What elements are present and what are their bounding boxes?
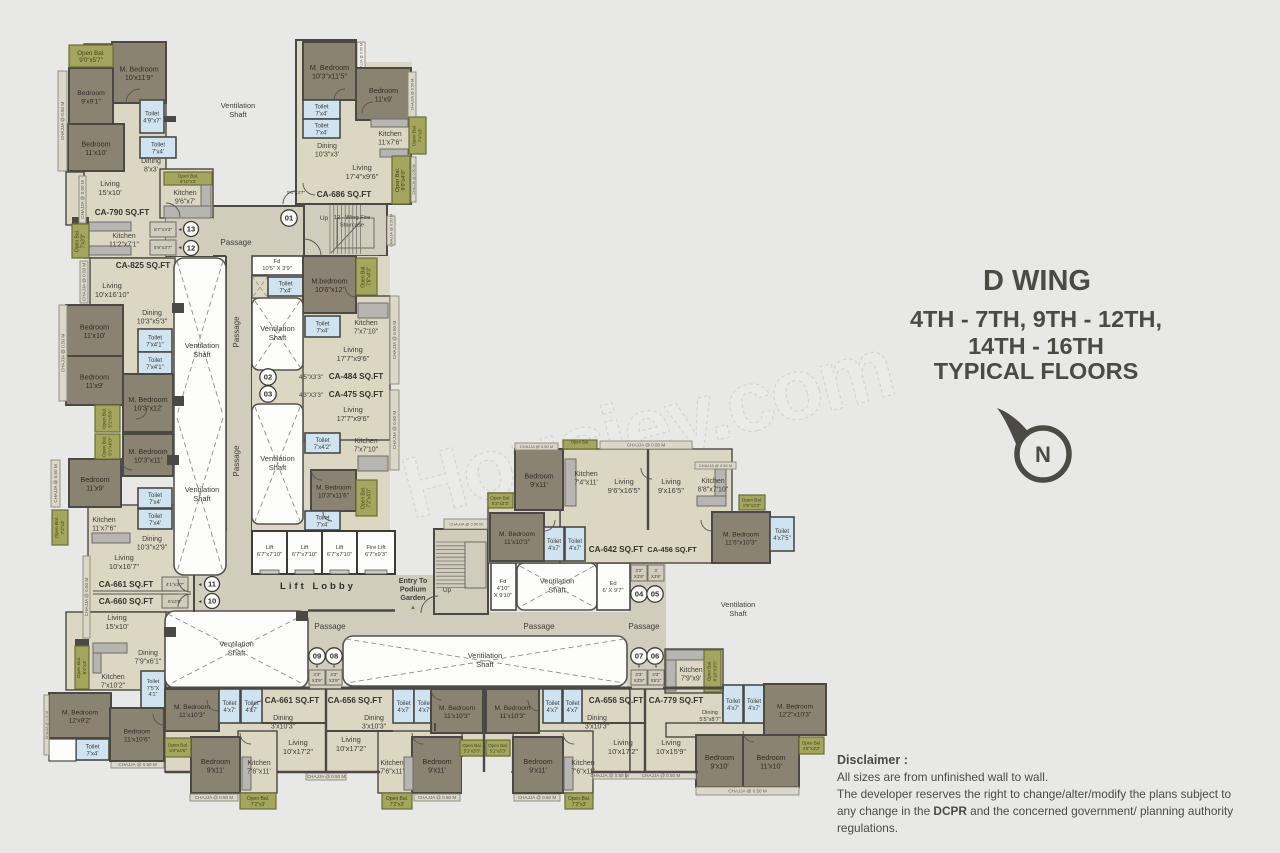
svg-text:▲: ▲ [410, 605, 416, 611]
svg-text:5'3"x3'3": 5'3"x3'3" [492, 501, 510, 506]
svg-text:4'3"X3'3": 4'3"X3'3" [299, 393, 323, 399]
svg-text:11'x10'3": 11'x10'3" [504, 539, 531, 546]
svg-text:10'x16'10": 10'x16'10" [95, 290, 130, 299]
svg-text:Open Bal.: Open Bal. [488, 743, 508, 748]
svg-text:M. Bedroom: M. Bedroom [723, 532, 759, 539]
svg-text:4'x7': 4'x7' [748, 706, 760, 712]
svg-text:Living: Living [343, 405, 363, 414]
svg-text:Lift Lobby: Lift Lobby [280, 581, 356, 592]
svg-text:Toilet: Toilet [726, 699, 740, 705]
svg-text:7'x4': 7'x4' [317, 329, 329, 335]
svg-text:14TH - 16TH: 14TH - 16TH [968, 333, 1104, 359]
svg-text:9'0"x5'7": 9'0"x5'7" [79, 57, 103, 64]
svg-text:Living: Living [288, 738, 308, 747]
svg-text:Toilet: Toilet [545, 701, 559, 707]
svg-text:Open Bal.: Open Bal. [76, 657, 82, 678]
svg-text:any change in the DCPR and the: any change in the DCPR and the concerned… [837, 804, 1233, 818]
svg-text:Living: Living [661, 738, 681, 747]
svg-text:9'4"x3': 9'4"x3' [82, 660, 88, 674]
svg-text:9'x16'5": 9'x16'5" [658, 486, 684, 495]
svg-text:Kitchen: Kitchen [701, 478, 724, 485]
svg-text:3'3": 3'3" [652, 672, 660, 677]
svg-text:7'x4'1": 7'x4'1" [146, 343, 163, 349]
svg-text:9'10"x3': 9'10"x3' [180, 179, 196, 184]
svg-text:12: 12 [187, 244, 195, 253]
svg-text:Garden: Garden [400, 593, 425, 602]
svg-text:Ed: Ed [609, 581, 616, 587]
svg-text:5'0"x4'6": 5'0"x4'6" [169, 748, 187, 753]
svg-text:11'x10'3": 11'x10'3" [444, 713, 471, 720]
svg-text:Toilet: Toilet [417, 701, 431, 707]
svg-text:Toilet: Toilet [147, 679, 160, 685]
svg-text:Toilet: Toilet [222, 701, 236, 707]
svg-text:Lift: Lift [336, 545, 344, 551]
svg-text:6'7"x7'10": 6'7"x7'10" [327, 552, 352, 558]
svg-text:5'1"x3'3": 5'1"x3'3" [490, 748, 507, 753]
svg-text:CHAJJA @ 0.50 M: CHAJJA @ 0.50 M [392, 411, 397, 450]
svg-text:5'5"x8'7": 5'5"x8'7" [699, 717, 720, 723]
svg-text:7'x7'10": 7'x7'10" [354, 447, 379, 454]
svg-text:7'x4'2": 7'x4'2" [314, 445, 331, 451]
svg-text:CHAJJA @ 0.50 M: CHAJJA @ 0.50 M [518, 795, 557, 800]
svg-text:4'x7': 4'x7' [224, 708, 236, 714]
svg-text:10'6"x12': 10'6"x12' [315, 285, 345, 294]
svg-text:Passage: Passage [523, 622, 555, 631]
svg-text:Toilet: Toilet [315, 516, 329, 522]
svg-text:5'1"x5'6": 5'1"x5'6" [108, 409, 114, 428]
svg-text:3'x10'3": 3'x10'3" [362, 724, 387, 731]
svg-text:3'3": 3'3" [635, 672, 643, 677]
svg-text:11'x9': 11'x9' [375, 95, 393, 104]
svg-text:4TH - 7TH, 9TH - 12TH,: 4TH - 7TH, 9TH - 12TH, [910, 306, 1162, 332]
svg-text:10'x16'7": 10'x16'7" [109, 562, 139, 571]
svg-text:M. Bedroom: M. Bedroom [128, 447, 167, 456]
svg-text:4'10": 4'10" [497, 586, 510, 592]
svg-text:Bedroom: Bedroom [80, 373, 109, 382]
svg-text:Bedroom: Bedroom [369, 86, 398, 95]
svg-text:Ventilation: Ventilation [219, 640, 254, 649]
svg-text:◄: ◄ [178, 227, 183, 233]
svg-text:4'1"x3'7": 4'1"x3'7" [166, 582, 185, 588]
svg-text:Dining: Dining [587, 715, 607, 722]
svg-text:7'4"x11': 7'4"x11' [574, 480, 598, 487]
svg-text:Toilet: Toilet [148, 358, 162, 364]
svg-text:◄: ◄ [178, 245, 183, 251]
svg-text:17'4"x9'6": 17'4"x9'6" [346, 172, 379, 181]
svg-text:7'x4': 7'x4' [152, 150, 164, 156]
svg-text:X 9'10": X 9'10" [494, 593, 512, 599]
svg-text:Kitchen: Kitchen [354, 320, 377, 327]
svg-text:08: 08 [330, 652, 338, 661]
svg-text:Ventilation: Ventilation [221, 101, 256, 110]
svg-text:8'8"x7'10": 8'8"x7'10" [698, 487, 729, 494]
svg-text:CA-656 SQ.FT: CA-656 SQ.FT [589, 696, 644, 705]
svg-text:Bedroom: Bedroom [80, 475, 109, 484]
svg-text:7'2"x3': 7'2"x3' [60, 520, 66, 534]
svg-text:Up: Up [320, 215, 329, 222]
svg-text:Dining: Dining [141, 158, 161, 165]
svg-text:CHAJJA @ 0.50 M: CHAJJA @ 0.50 M [520, 444, 553, 449]
svg-text:Toilet: Toilet [148, 336, 162, 342]
svg-text:Kitchen: Kitchen [173, 190, 196, 197]
svg-text:Ventilation: Ventilation [260, 454, 295, 463]
svg-text:Open Bal.: Open Bal. [571, 440, 590, 445]
svg-text:CA-661 SQ.FT: CA-661 SQ.FT [99, 580, 154, 589]
svg-text:Living: Living [352, 163, 372, 172]
svg-text:10: 10 [208, 597, 216, 606]
svg-text:Toilet: Toilet [278, 282, 292, 288]
svg-text:M. Bedroom: M. Bedroom [62, 710, 98, 717]
svg-text:Toilet: Toilet [151, 143, 165, 149]
svg-text:13: 13 [187, 225, 195, 234]
svg-text:Living: Living [107, 613, 127, 622]
svg-text:Dining: Dining [142, 536, 162, 543]
svg-text:CHAJJA @ 0.50 M: CHAJJA @ 0.50 M [53, 464, 58, 503]
svg-text:Open Bal.: Open Bal. [102, 436, 108, 457]
svg-text:5'7"x3'3": 5'7"x3'3" [154, 227, 173, 233]
svg-text:11'x7'6": 11'x7'6" [378, 140, 402, 147]
svg-text:Living: Living [341, 735, 361, 744]
svg-text:Lift: Lift [266, 545, 274, 551]
svg-text:7'x4': 7'x4' [87, 752, 99, 758]
svg-text:5'1"x3'3": 5'1"x3'3" [464, 748, 481, 753]
svg-text:7'x4': 7'x4' [149, 500, 161, 506]
svg-text:Open Bal.: Open Bal. [490, 496, 510, 501]
svg-text:9'9"x4'0": 9'9"x4'0" [401, 169, 407, 190]
svg-text:11'x10': 11'x10' [84, 331, 106, 340]
svg-text:15'x10': 15'x10' [105, 622, 129, 631]
svg-text:M. Bedroom: M. Bedroom [128, 395, 167, 404]
svg-text:M. Bedroom: M. Bedroom [174, 704, 210, 711]
svg-text:Shaft: Shaft [729, 609, 747, 618]
svg-text:7'9"x9': 7'9"x9' [681, 676, 701, 683]
svg-text:11'x9': 11'x9' [86, 484, 104, 493]
svg-text:11'x10': 11'x10' [760, 762, 782, 771]
svg-text:Toilet: Toilet [568, 539, 582, 545]
svg-text:Living: Living [100, 179, 120, 188]
svg-text:7'x7'10": 7'x7'10" [354, 329, 379, 336]
svg-text:9'x9'1": 9'x9'1" [81, 98, 101, 105]
svg-text:12 - Wing Fire: 12 - Wing Fire [334, 215, 370, 221]
svg-text:Bedroom: Bedroom [77, 90, 105, 97]
svg-text:CHAJJA @ 0.50 M: CHAJJA @ 0.50 M [61, 334, 66, 373]
svg-text:Dining: Dining [364, 715, 384, 722]
svg-text:M. Bedroom: M. Bedroom [119, 65, 158, 74]
svg-text:3'3": 3'3" [313, 672, 321, 677]
svg-text:CHAJJA @ 0.50 M: CHAJJA @ 0.50 M [45, 711, 49, 739]
svg-text:10'x17'2": 10'x17'2" [336, 744, 366, 753]
svg-text:CHAJJA @ 0.50 M: CHAJJA @ 0.50 M [307, 774, 346, 779]
svg-text:D WING: D WING [983, 265, 1091, 297]
svg-text:Shaft: Shaft [269, 463, 287, 472]
svg-text:11'x10': 11'x10' [85, 148, 107, 157]
svg-text:CHAJJA @ 0.50 M: CHAJJA @ 0.50 M [411, 79, 415, 111]
svg-text:Living: Living [614, 477, 634, 486]
svg-text:Kitchen: Kitchen [101, 674, 124, 681]
svg-text:Shaft: Shaft [476, 660, 494, 669]
svg-text:Ventilation: Ventilation [185, 341, 220, 350]
svg-text:CHAJJA @ 0.50 M: CHAJJA @ 0.50 M [699, 463, 732, 468]
svg-text:6'5"x3'3": 6'5"x3'3" [743, 503, 761, 508]
svg-text:X3'9": X3'9" [651, 574, 662, 579]
svg-text:X5'2": X5'2" [651, 678, 662, 683]
svg-text:4'x7': 4'x7' [727, 706, 739, 712]
svg-text:7'x4'1": 7'x4'1" [146, 365, 163, 371]
svg-text:Open Bal.: Open Bal. [54, 517, 60, 538]
svg-text:11'2"x7'1": 11'2"x7'1" [109, 242, 140, 249]
svg-text:Bedroom: Bedroom [201, 757, 230, 766]
svg-text:7'8"x4'0": 7'8"x4'0" [367, 267, 373, 286]
svg-text:Fire Lift: Fire Lift [366, 545, 386, 551]
svg-text:Bedroom: Bedroom [81, 140, 110, 149]
svg-text:8'x3': 8'x3' [144, 167, 158, 174]
svg-text:Ventilation: Ventilation [185, 485, 220, 494]
svg-text:CHAJJA @ 0.50 M: CHAJJA @ 0.50 M [84, 578, 89, 617]
svg-text:CA-642 SQ.FT: CA-642 SQ.FT [589, 545, 644, 554]
svg-text:Ventilation: Ventilation [721, 600, 756, 609]
svg-text:Toilet: Toilet [315, 438, 329, 444]
svg-text:CHAJJA @ 0.50 M: CHAJJA @ 0.50 M [82, 263, 87, 302]
svg-text:03: 03 [264, 390, 272, 399]
svg-text:Kitchen: Kitchen [112, 233, 135, 240]
svg-text:9'x10': 9'x10' [710, 762, 729, 771]
svg-text:Toilet: Toilet [747, 699, 761, 705]
svg-text:Fd: Fd [274, 259, 281, 265]
svg-text:9'x11': 9'x11' [530, 480, 548, 489]
svg-text:7'6"x11': 7'6"x11' [380, 769, 404, 776]
svg-text:CA-484 SQ.FT: CA-484 SQ.FT [329, 372, 384, 381]
svg-text:6'7"x7'10": 6'7"x7'10" [292, 552, 317, 558]
svg-text:3'x10'3": 3'x10'3" [271, 724, 296, 731]
svg-text:05: 05 [651, 590, 660, 599]
svg-text:Dining: Dining [142, 310, 162, 317]
svg-text:CHAJJA @ 0.50 M: CHAJJA @ 0.50 M [449, 522, 482, 527]
svg-text:CA-656 SQ.FT: CA-656 SQ.FT [328, 696, 383, 705]
svg-text:10'3"x12': 10'3"x12' [134, 404, 164, 413]
svg-text:7'2"x4'0": 7'2"x4'0" [367, 488, 373, 507]
svg-text:M.bedroom: M.bedroom [311, 277, 347, 286]
svg-text:Shaft: Shaft [193, 350, 211, 359]
svg-text:TYPICAL FLOORS: TYPICAL FLOORS [934, 358, 1139, 384]
svg-text:M. Bedroom: M. Bedroom [316, 485, 351, 492]
svg-text:Ventilation: Ventilation [260, 324, 295, 333]
svg-text:Dining: Dining [273, 715, 293, 722]
svg-text:Disclaimer :: Disclaimer : [837, 753, 908, 767]
svg-text:12'x9'2": 12'x9'2" [69, 718, 92, 725]
svg-text:Kitchen: Kitchen [679, 667, 702, 674]
svg-text:Kitchen: Kitchen [380, 760, 403, 767]
svg-text:8'10"X3'5": 8'10"X3'5" [713, 660, 718, 681]
svg-text:7'x4': 7'x4' [280, 289, 292, 295]
svg-text:Shaft: Shaft [193, 494, 211, 503]
svg-text:07: 07 [635, 652, 643, 661]
svg-text:Dining: Dining [702, 710, 718, 716]
svg-text:Ventilation: Ventilation [540, 577, 575, 586]
svg-text:Open Bal.: Open Bal. [802, 741, 822, 746]
svg-text:04: 04 [635, 590, 644, 599]
svg-text:9'x11': 9'x11' [529, 766, 547, 775]
svg-text:CHAJJA @ 0.50 M: CHAJJA @ 0.50 M [642, 773, 681, 778]
svg-text:17'7"x9'6": 17'7"x9'6" [337, 414, 370, 423]
svg-text:X3'9": X3'9" [634, 678, 645, 683]
svg-text:6' X 9'7": 6' X 9'7" [602, 588, 623, 594]
svg-text:CA-660 SQ.FT: CA-660 SQ.FT [99, 597, 154, 606]
svg-text:Bedroom: Bedroom [422, 757, 451, 766]
svg-text:Kitchen: Kitchen [378, 131, 401, 138]
svg-text:5'1"x6'0": 5'1"x6'0" [108, 437, 114, 456]
svg-text:Shaft: Shaft [548, 586, 566, 595]
svg-text:Bedroom: Bedroom [124, 729, 151, 736]
svg-text:CA-456 SQ.FT: CA-456 SQ.FT [647, 545, 697, 554]
svg-text:CHAJJA @ 0.50 M: CHAJJA @ 0.50 M [627, 443, 666, 448]
svg-text:4'8"X3'3": 4'8"X3'3" [803, 746, 821, 751]
svg-text:CHAJJA @ 0.50 M: CHAJJA @ 0.50 M [728, 789, 767, 794]
svg-text:10'3"x3': 10'3"x3' [315, 152, 339, 159]
svg-text:Lift: Lift [301, 545, 309, 551]
svg-text:10'x17'2": 10'x17'2" [608, 747, 638, 756]
svg-text:Passage: Passage [628, 622, 660, 631]
svg-text:3'3": 3'3" [330, 672, 338, 677]
svg-text:Passage: Passage [232, 316, 241, 348]
svg-text:CHAJJA @ 0.50 M: CHAJJA @ 0.50 M [80, 180, 85, 219]
svg-text:01: 01 [285, 214, 294, 223]
svg-text:The developer reserves the rig: The developer reserves the right to chan… [837, 787, 1232, 801]
svg-text:CHAJJA @ 0.50 M: CHAJJA @ 0.50 M [418, 795, 457, 800]
svg-text:Kitchen: Kitchen [354, 438, 377, 445]
svg-text:Bedroom: Bedroom [523, 757, 552, 766]
svg-text:7'2"x3': 7'2"x3' [251, 802, 266, 808]
svg-text:CHAJJA @ 0.50 M: CHAJJA @ 0.50 M [412, 164, 416, 194]
svg-text:12'2"x10'3": 12'2"x10'3" [779, 712, 812, 719]
svg-text:Bedroom: Bedroom [756, 753, 785, 762]
svg-text:CHAJJA @ 0.50 M: CHAJJA @ 0.50 M [389, 214, 394, 247]
svg-text:Toilet: Toilet [145, 112, 159, 118]
svg-text:10'x15'9": 10'x15'9" [656, 747, 686, 756]
svg-text:6'7"x9'3": 6'7"x9'3" [365, 552, 387, 558]
svg-text:X3'9": X3'9" [634, 574, 645, 579]
svg-text:N: N [1035, 442, 1051, 467]
svg-text:Open Bal.: Open Bal. [77, 50, 105, 57]
svg-text:Living: Living [661, 477, 681, 486]
svg-text:9'6"x16'5": 9'6"x16'5" [608, 486, 641, 495]
svg-text:Toilet: Toilet [547, 539, 561, 545]
svg-text:11'x9': 11'x9' [86, 381, 104, 390]
svg-text:4'x7': 4'x7' [398, 708, 410, 714]
svg-text:10'x17'2": 10'x17'2" [283, 747, 313, 756]
svg-text:Toilet: Toilet [148, 493, 162, 499]
svg-text:Toilet: Toilet [85, 745, 99, 751]
svg-text:10'3"x11'6": 10'3"x11'6" [318, 492, 349, 499]
svg-text:M. Bedroom: M. Bedroom [495, 705, 531, 712]
svg-text:09: 09 [313, 652, 321, 661]
svg-text:7'5"X: 7'5"X [147, 686, 160, 692]
svg-text:11: 11 [208, 580, 217, 589]
svg-text:CA-686 SQ.FT: CA-686 SQ.FT [317, 190, 372, 199]
svg-text:Fd: Fd [500, 579, 507, 585]
svg-text:15'x10': 15'x10' [98, 188, 122, 197]
svg-text:CHAJJA @ 0.50 M: CHAJJA @ 0.50 M [118, 762, 157, 767]
svg-text:Kitchen: Kitchen [92, 517, 115, 524]
svg-text:Passage: Passage [220, 238, 252, 247]
svg-text:Staircase: Staircase [340, 222, 364, 228]
svg-text:regulations.: regulations. [837, 821, 898, 835]
svg-text:3'x10'3": 3'x10'3" [585, 724, 610, 731]
svg-text:Open Bal.: Open Bal. [168, 743, 188, 748]
svg-text:Open Bal.: Open Bal. [462, 743, 482, 748]
svg-text:7'x4': 7'x4' [149, 521, 161, 527]
svg-text:7'x4': 7'x4' [317, 523, 329, 529]
svg-text:Kitchen: Kitchen [247, 760, 270, 767]
svg-text:Dining: Dining [138, 650, 158, 657]
svg-text:Passage: Passage [314, 622, 346, 631]
svg-text:5'9"x3'7": 5'9"x3'7" [154, 245, 173, 251]
svg-text:3'3": 3'3" [635, 568, 643, 573]
svg-text:10'3"x5'3": 10'3"x5'3" [137, 319, 168, 326]
svg-text:M. Bedroom: M. Bedroom [439, 705, 475, 712]
svg-text:Bedroom: Bedroom [705, 753, 734, 762]
svg-text:10'3"x11'5": 10'3"x11'5" [312, 72, 347, 81]
svg-text:Toilet: Toilet [315, 322, 329, 328]
svg-text:4'x7': 4'x7' [567, 708, 579, 714]
svg-text:CA-825 SQ.FT: CA-825 SQ.FT [116, 261, 171, 270]
svg-text:Up: Up [443, 587, 452, 594]
svg-text:11'x10'3": 11'x10'3" [499, 713, 526, 720]
svg-text:10'3"x11': 10'3"x11' [134, 456, 163, 465]
svg-text:Bedroom: Bedroom [80, 323, 109, 332]
svg-text:All sizes are from unfinished: All sizes are from unfinished wall to wa… [837, 770, 1048, 784]
svg-text:4'9"x7': 4'9"x7' [143, 119, 160, 125]
svg-text:4'x7': 4'x7' [419, 708, 431, 714]
svg-text:Toilet: Toilet [148, 514, 162, 520]
svg-text:4'5"X3'3": 4'5"X3'3" [299, 375, 323, 381]
svg-text:Bedroom: Bedroom [524, 472, 553, 481]
svg-text:11'x10'6": 11'x10'6" [124, 737, 151, 744]
svg-text:10'5" X 3'9": 10'5" X 3'9" [262, 266, 292, 272]
svg-text:7'9"x6'1": 7'9"x6'1" [135, 659, 162, 666]
svg-text:10'3"x2'9": 10'3"x2'9" [137, 545, 168, 552]
svg-text:4'x7': 4'x7' [547, 708, 559, 714]
svg-text:Living: Living [114, 553, 134, 562]
svg-text:Open Bal.: Open Bal. [742, 498, 762, 503]
svg-text:Ventilation: Ventilation [468, 651, 503, 660]
svg-text:4'x7': 4'x7' [548, 546, 560, 552]
svg-text:X3'9": X3'9" [312, 678, 323, 683]
svg-text:7'4"x3': 7'4"x3' [418, 128, 424, 142]
svg-text:3': 3' [654, 568, 657, 573]
svg-text:11'x10'3": 11'x10'3" [179, 712, 206, 719]
svg-text:9'x11': 9'x11' [207, 766, 225, 775]
svg-text:Shaft: Shaft [269, 333, 287, 342]
svg-text:CHAJJA @ 0.50 M: CHAJJA @ 0.50 M [60, 102, 65, 141]
svg-text:◄: ◄ [198, 599, 203, 605]
svg-text:9'x11': 9'x11' [428, 766, 446, 775]
svg-text:CHAJJA @ 0.50 M: CHAJJA @ 0.50 M [195, 795, 234, 800]
svg-text:CA-790 SQ.FT: CA-790 SQ.FT [95, 208, 150, 217]
svg-text:Toilet: Toilet [775, 529, 789, 535]
svg-text:Kitchen: Kitchen [574, 471, 597, 478]
svg-text:Open Bal.: Open Bal. [707, 661, 712, 681]
svg-text:Shaft: Shaft [229, 110, 247, 119]
svg-text:4'x7'5": 4'x7'5" [773, 536, 790, 542]
svg-text:Dining: Dining [317, 143, 337, 150]
svg-text:◄: ◄ [198, 582, 203, 588]
svg-text:Passage: Passage [232, 445, 241, 477]
svg-text:7'x10'2": 7'x10'2" [101, 683, 126, 690]
svg-text:Toilet: Toilet [314, 105, 328, 111]
svg-text:02: 02 [264, 373, 272, 382]
svg-text:M. Bedroom: M. Bedroom [310, 63, 349, 72]
svg-text:4'1": 4'1" [149, 692, 158, 698]
